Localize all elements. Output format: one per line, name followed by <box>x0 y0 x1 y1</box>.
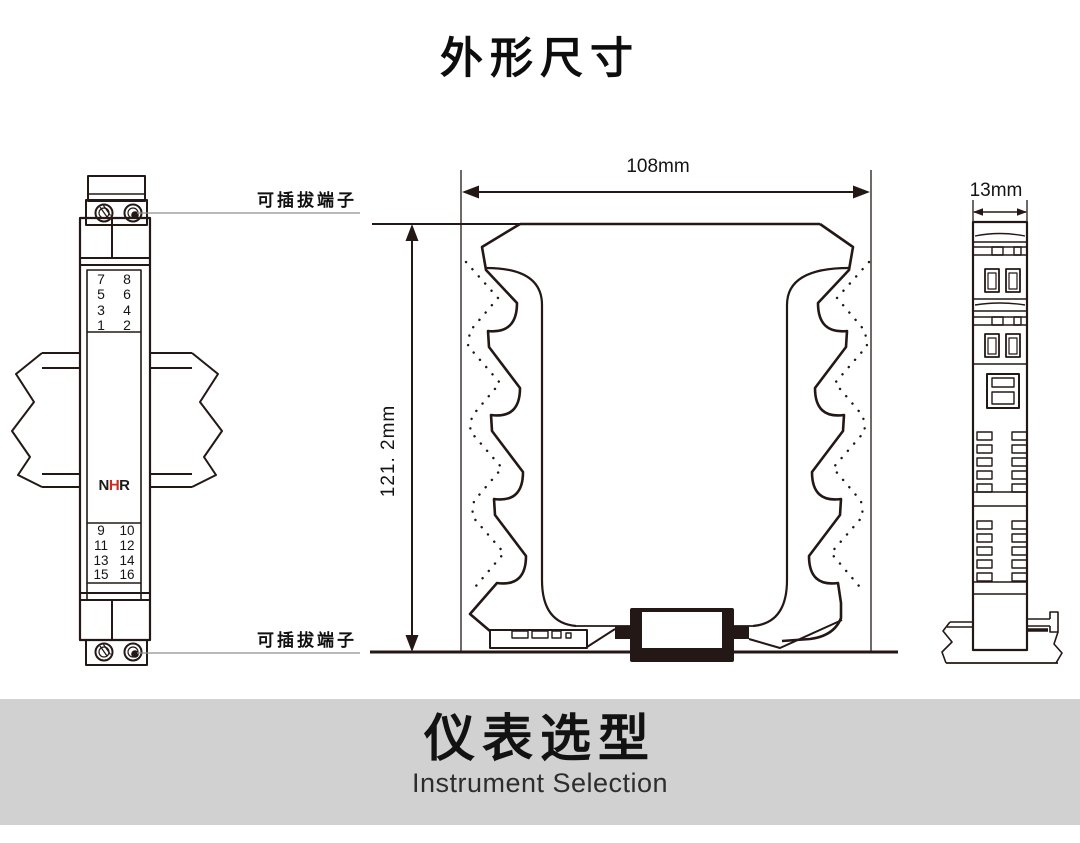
pluggable-terminal-label-bottom: 可插拔端子 <box>257 626 357 651</box>
terminal-number: 12 <box>114 539 140 554</box>
terminal-number: 3 <box>88 303 114 318</box>
terminal-number: 13 <box>88 554 114 569</box>
terminal-number: 7 <box>88 272 114 287</box>
section-banner: 仪表选型 Instrument Selection <box>0 699 1080 825</box>
pluggable-terminal-label-top: 可插拔端子 <box>257 186 357 211</box>
module-outline <box>470 224 853 641</box>
terminal-number: 11 <box>88 539 114 554</box>
dimension-height-label: 121. 2mm <box>378 381 400 521</box>
latch-window <box>987 374 1019 408</box>
dotted-guide-right <box>831 262 869 586</box>
module-body <box>973 222 1027 650</box>
dimension-arrow-vertical <box>406 224 419 652</box>
terminal-number: 9 <box>88 524 114 539</box>
dotted-guide-left <box>466 262 504 586</box>
terminal-slots <box>985 269 1020 292</box>
page-title: 外形尺寸 <box>0 24 1080 86</box>
din-rail <box>942 622 1062 663</box>
side-view-drawing <box>360 150 900 670</box>
terminal-number: 1 <box>88 318 114 333</box>
front-view-drawing <box>0 160 380 680</box>
brand-logo: NHR <box>88 477 140 494</box>
dimension-arrow-horizontal <box>973 208 1027 216</box>
dimension-depth-label: 13mm <box>946 180 1046 202</box>
screw-terminal-icon <box>96 644 142 661</box>
extension-lines <box>461 170 871 652</box>
banner-subtitle: Instrument Selection <box>412 768 668 799</box>
terminal-numbers-top: 7 8 5 6 3 4 1 2 <box>88 272 140 334</box>
terminal-number: 2 <box>114 318 140 333</box>
brand-letter-h: H <box>109 477 119 494</box>
terminal-number: 6 <box>114 287 140 302</box>
terminal-slots <box>985 334 1020 357</box>
terminal-number: 4 <box>114 303 140 318</box>
dimension-arrow-horizontal <box>462 186 870 199</box>
terminal-number: 14 <box>114 554 140 569</box>
vent-slots <box>977 521 1027 581</box>
vent-slots <box>977 432 1027 492</box>
terminal-number: 10 <box>114 524 140 539</box>
terminal-number: 8 <box>114 272 140 287</box>
bottom-connector-strip <box>490 629 615 648</box>
terminal-number: 16 <box>114 568 140 583</box>
din-rail <box>12 353 222 487</box>
rail-latch <box>1027 612 1058 632</box>
page: 外形尺寸 <box>0 0 1080 843</box>
brand-letter-n: N <box>98 477 108 494</box>
terminal-numbers-bottom: 9 10 11 12 13 14 15 16 <box>88 524 140 583</box>
banner-title: 仪表选型 <box>424 705 656 774</box>
dimension-width-label: 108mm <box>598 156 718 178</box>
terminal-number: 5 <box>88 287 114 302</box>
terminal-number: 15 <box>88 568 114 583</box>
end-view-drawing <box>930 150 1080 680</box>
brand-letter-r: R <box>119 477 129 494</box>
top-cap <box>88 176 145 201</box>
din-clip <box>615 608 749 662</box>
